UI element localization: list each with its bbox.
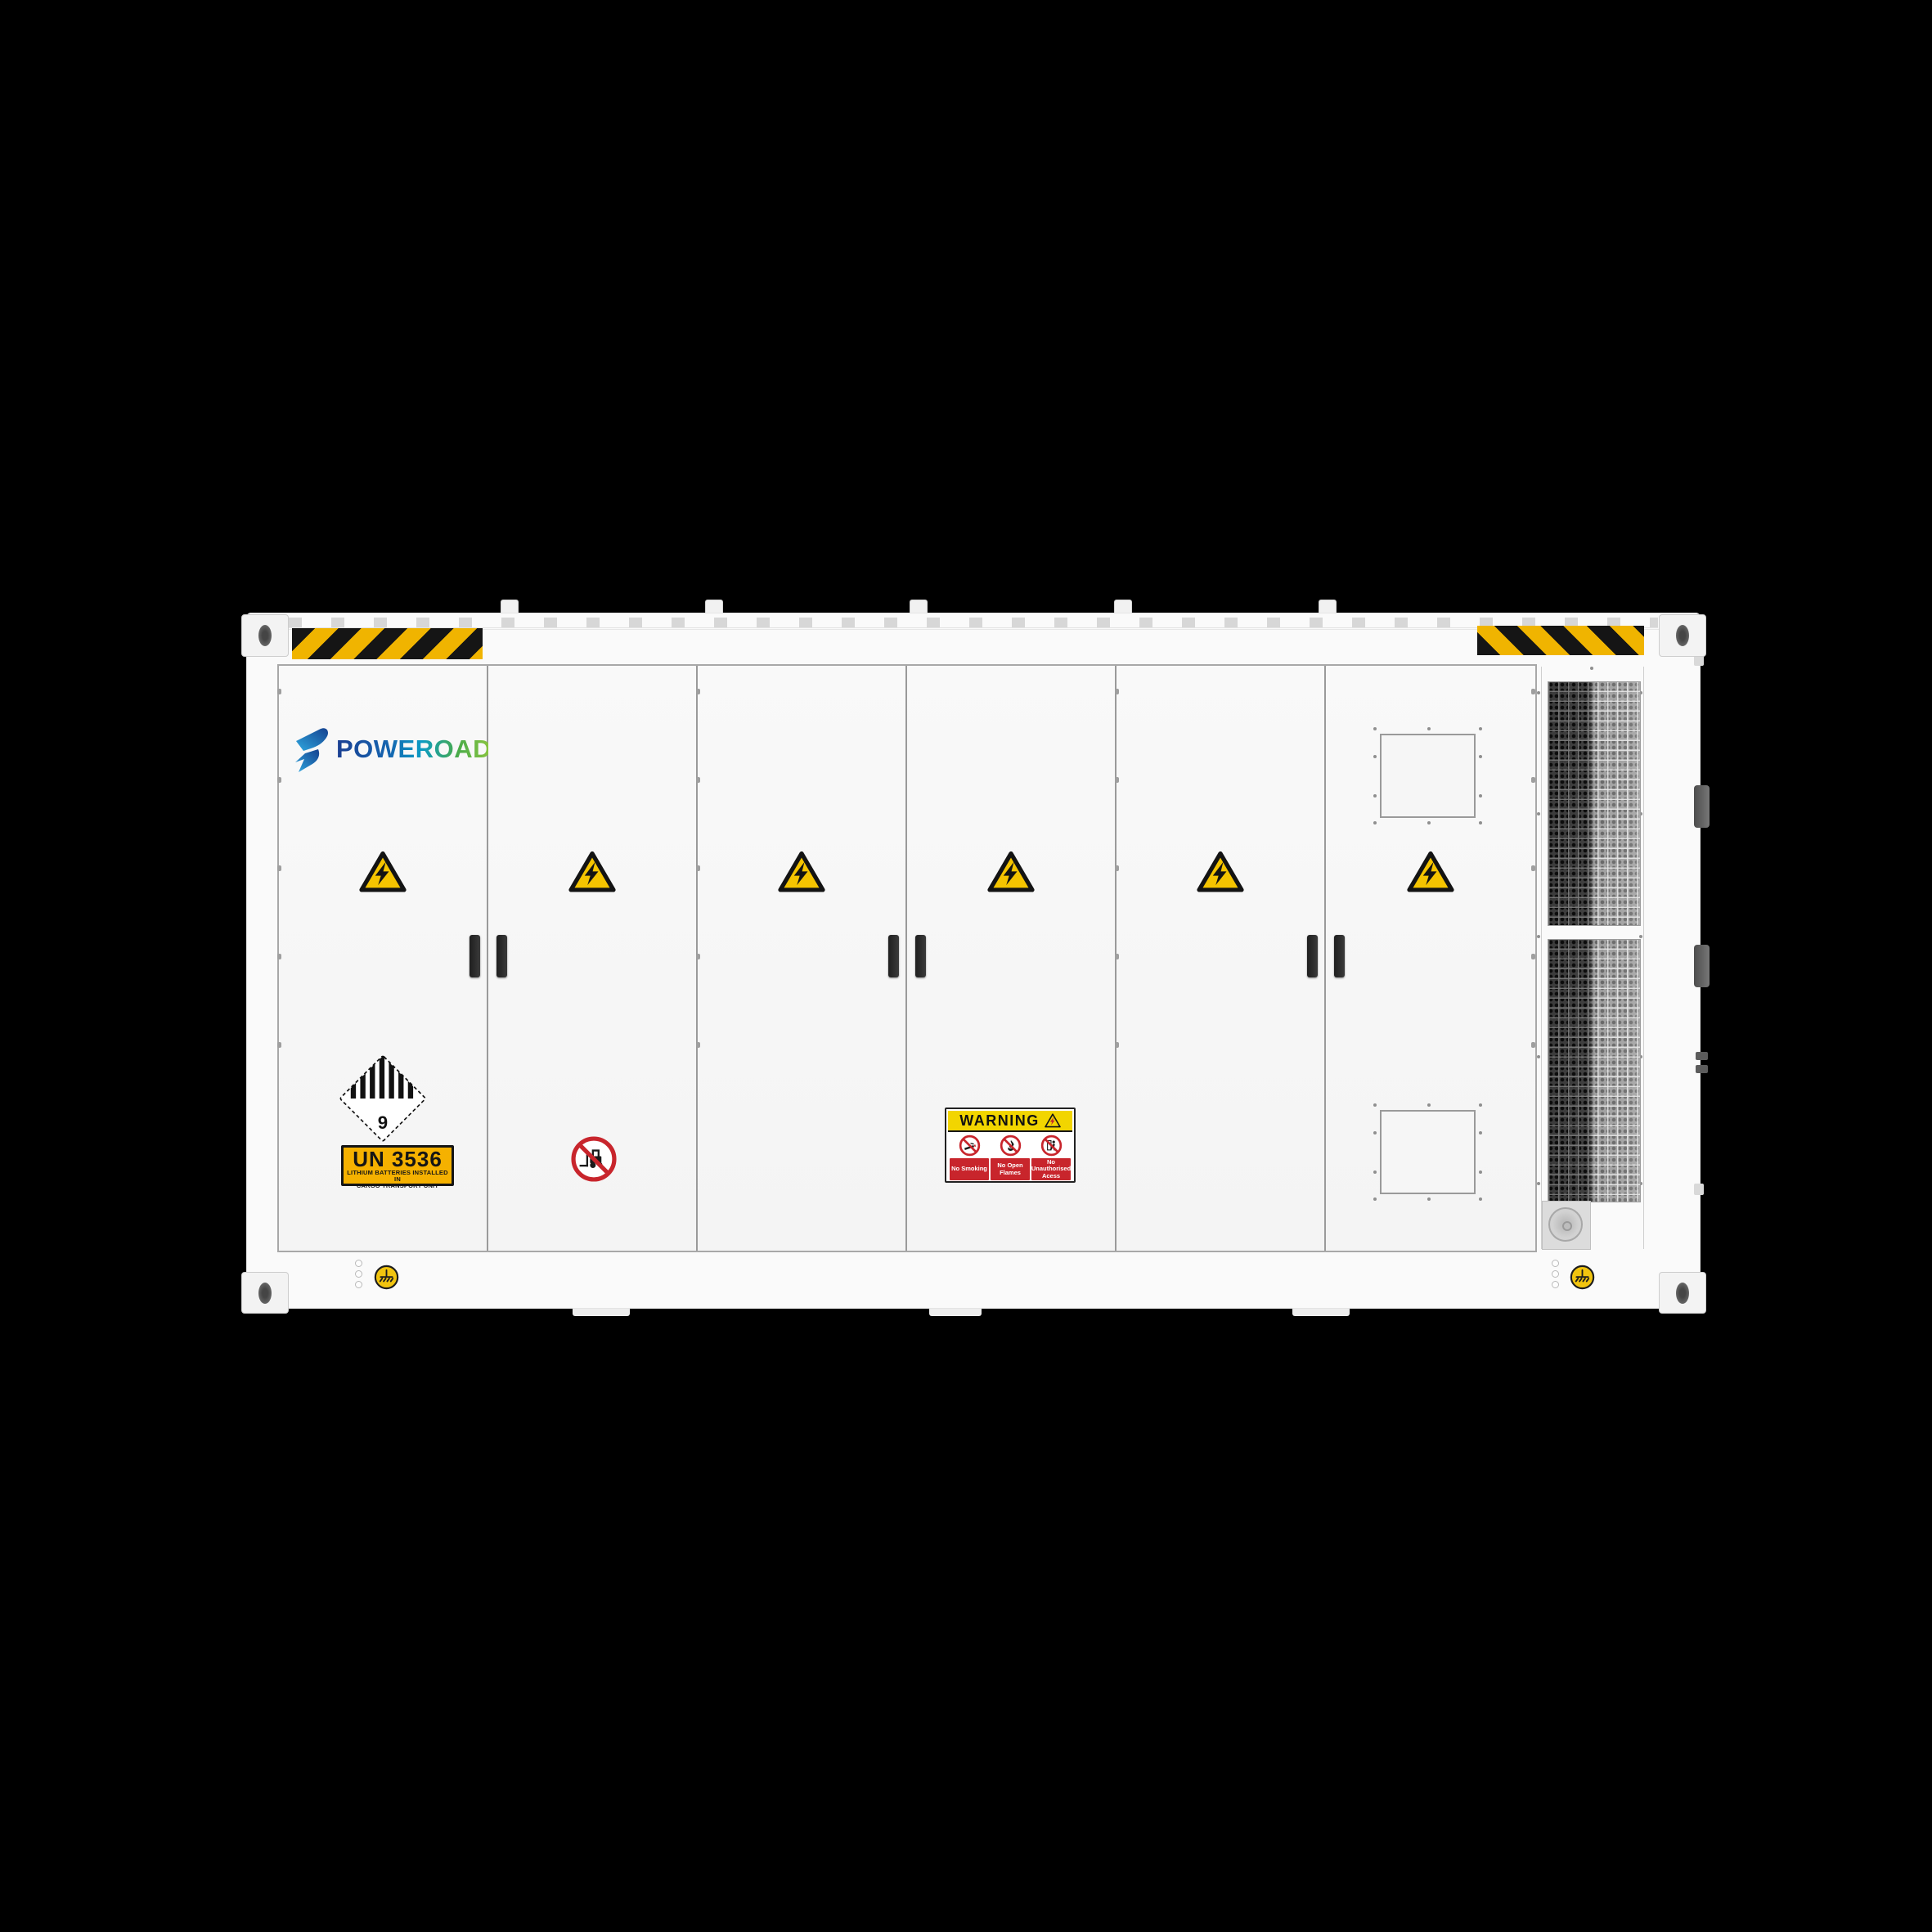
corner-casting-bottom-right — [1659, 1272, 1706, 1314]
ground-symbol-icon — [374, 1265, 399, 1290]
access-panel-top — [1380, 734, 1476, 818]
vent-frame-line-right — [1643, 667, 1644, 1249]
door-2 — [488, 666, 698, 1251]
class9-number: 9 — [378, 1112, 388, 1133]
door-handle — [1307, 935, 1318, 977]
door-5 — [1117, 666, 1326, 1251]
warning-header: WARNING — [948, 1111, 1072, 1132]
door-handle — [496, 935, 507, 977]
side-nub — [1696, 1065, 1708, 1073]
door-6 — [1326, 666, 1535, 1251]
casting-hole-icon — [258, 1283, 272, 1304]
high-voltage-icon — [987, 851, 1035, 893]
brand-wordmark: POWEROAD — [336, 735, 492, 764]
drain-holes-right — [1552, 1260, 1559, 1292]
corner-casting-top-left — [241, 614, 289, 657]
high-voltage-icon — [778, 851, 825, 893]
no-unauthorised-access-icon — [1040, 1134, 1063, 1157]
ventilation-grille-top — [1548, 681, 1641, 926]
warning-label: WARNING — [945, 1108, 1076, 1183]
warning-item-no-unauthorised-access: No Unauthorised Acess — [1031, 1134, 1071, 1180]
door-handle — [888, 935, 899, 977]
warning-title: WARNING — [959, 1112, 1040, 1130]
no-smoking-text: No Smoking — [950, 1158, 989, 1180]
ground-symbol-icon — [1570, 1265, 1595, 1290]
side-notch — [1694, 1184, 1704, 1195]
side-nub — [1696, 1052, 1708, 1060]
no-open-flames-text: No Open Flames — [991, 1158, 1030, 1180]
casting-hole-icon — [1676, 1283, 1689, 1304]
roof-corrugation-strip — [289, 618, 1658, 628]
door-1: POWEROAD 9 UN 3536 — [279, 666, 488, 1251]
no-forklift-icon — [570, 1135, 618, 1183]
hazard-stripe-right — [1477, 626, 1644, 655]
ventilation-grille-bottom — [1548, 939, 1641, 1202]
side-hinge-bracket — [1694, 945, 1710, 987]
high-voltage-icon — [568, 851, 616, 893]
side-hinge-bracket — [1694, 785, 1710, 828]
high-voltage-icon — [1407, 851, 1454, 893]
cable-gland-icon — [1548, 1207, 1583, 1242]
door-handle — [1334, 935, 1345, 977]
warning-item-no-smoking: No Smoking — [950, 1134, 989, 1180]
corner-casting-top-right — [1659, 614, 1706, 657]
door-handle — [915, 935, 926, 977]
no-open-flames-icon — [1000, 1134, 1022, 1157]
no-smoking-icon — [959, 1134, 981, 1157]
door-3 — [698, 666, 907, 1251]
battery-storage-container: POWEROAD 9 UN 3536 — [246, 613, 1701, 1309]
warning-item-no-open-flames: No Open Flames — [991, 1134, 1030, 1180]
door-bay: POWEROAD 9 UN 3536 — [277, 664, 1537, 1252]
brand-logo: POWEROAD — [293, 726, 492, 773]
poweroad-logo-icon — [293, 726, 329, 773]
un-line2: CARGO TRANSPORT UNIT — [344, 1183, 452, 1189]
door-4: WARNING — [907, 666, 1117, 1251]
casting-hole-icon — [258, 625, 272, 646]
corner-casting-bottom-left — [241, 1272, 289, 1314]
vent-frame-line-left — [1541, 667, 1542, 1249]
high-voltage-icon — [359, 851, 407, 893]
warning-triangle-icon — [1045, 1113, 1061, 1128]
hazard-stripe-left — [292, 628, 483, 659]
access-panel-bottom — [1380, 1110, 1476, 1194]
un-line1: LITHIUM BATTERIES INSTALLED IN — [344, 1170, 452, 1183]
cable-gland-box — [1542, 1201, 1591, 1250]
class9-placard-icon: 9 — [339, 1055, 426, 1142]
high-voltage-icon — [1197, 851, 1244, 893]
drain-holes-left — [355, 1260, 362, 1292]
un-code: UN 3536 — [344, 1148, 452, 1170]
warning-items-row: No Smoking No Open Flames — [948, 1134, 1072, 1180]
no-unauthorised-access-text: No Unauthorised Acess — [1031, 1158, 1071, 1180]
door-handle — [470, 935, 480, 977]
un3536-label: UN 3536 LITHIUM BATTERIES INSTALLED IN C… — [341, 1145, 454, 1186]
casting-hole-icon — [1676, 625, 1689, 646]
